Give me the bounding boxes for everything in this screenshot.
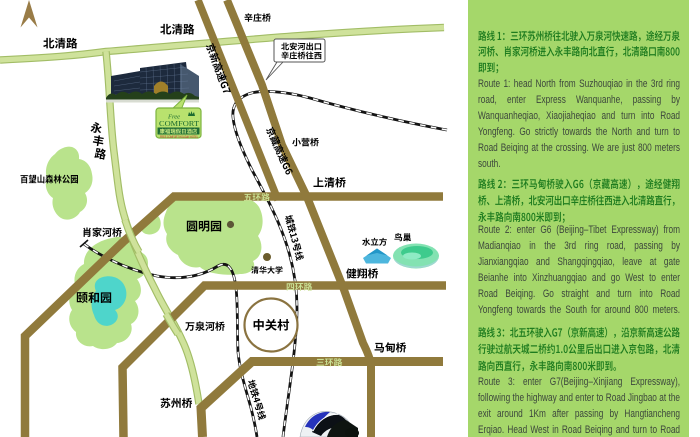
svg-text:COMFORT: COMFORT — [159, 120, 200, 128]
svg-text:FREE COMFORT HOLIDAY HOTEL: FREE COMFORT HOLIDAY HOTEL — [160, 135, 198, 139]
